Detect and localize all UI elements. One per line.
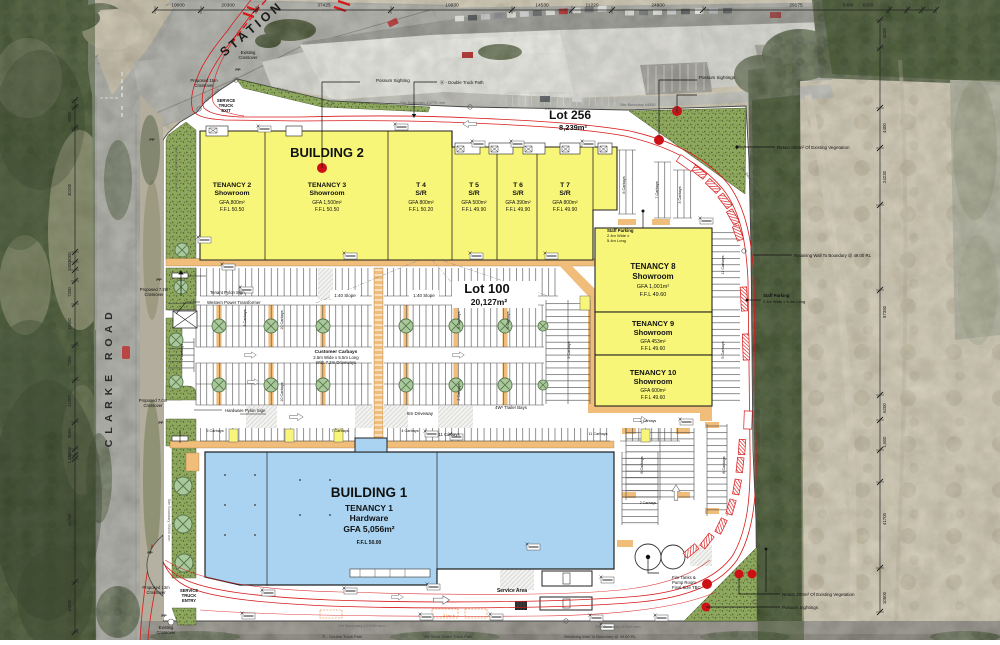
- svg-text:Ⓐ - Double Truck Path: Ⓐ - Double Truck Path: [322, 633, 362, 639]
- svg-text:11 Carbays: 11 Carbays: [588, 432, 607, 436]
- svg-text:5 Carbays: 5 Carbays: [721, 341, 725, 358]
- svg-text:Ⓐ - Double Truck Path: Ⓐ - Double Truck Path: [440, 79, 484, 86]
- svg-text:10 Carbays: 10 Carbays: [280, 310, 284, 330]
- svg-text:2 Carbays: 2 Carbays: [457, 383, 461, 400]
- svg-text:10 Carbays: 10 Carbays: [280, 382, 284, 402]
- svg-text:ENTRY: ENTRY: [182, 598, 196, 603]
- svg-text:Retain 200m² Of Existing Veget: Retain 200m² Of Existing Vegetation: [782, 592, 855, 597]
- svg-text:Showroom: Showroom: [634, 328, 673, 337]
- svg-text:10500: 10500: [67, 599, 72, 612]
- svg-text:3300: 3300: [67, 261, 72, 271]
- svg-text:97350: 97350: [882, 305, 887, 318]
- svg-text:T 4: T 4: [416, 182, 426, 189]
- svg-text:6 Carbays: 6 Carbays: [622, 176, 626, 193]
- svg-text:2.4m Wide x 5.4m Long: 2.4m Wide x 5.4m Long: [763, 299, 805, 304]
- svg-text:Staff Parking: Staff Parking: [763, 293, 790, 298]
- svg-text:C L A R K E R O A D: C L A R K E R O A D: [103, 311, 115, 448]
- svg-text:Possum Sightings: Possum Sightings: [699, 75, 736, 80]
- svg-text:4W Semi Trailer Truck Path: 4W Semi Trailer Truck Path: [424, 634, 473, 639]
- svg-text:24230: 24230: [882, 170, 887, 183]
- svg-text:F.F.L 50.00: F.F.L 50.00: [357, 540, 382, 546]
- svg-text:S/R: S/R: [415, 190, 426, 197]
- svg-text:Crossover: Crossover: [146, 590, 166, 595]
- svg-text:Western Power Transformer: Western Power Transformer: [207, 300, 261, 305]
- svg-text:EXIT: EXIT: [221, 108, 231, 113]
- svg-text:PP: PP: [158, 420, 164, 425]
- svg-text:41700: 41700: [882, 512, 887, 525]
- svg-text:Tenant Pylon Sign: Tenant Pylon Sign: [210, 290, 245, 295]
- svg-text:TENANCY 9: TENANCY 9: [632, 319, 674, 328]
- svg-text:TENANCY 8: TENANCY 8: [630, 262, 676, 271]
- svg-text:6059: 6059: [882, 28, 887, 38]
- svg-text:1:40 Slope: 1:40 Slope: [334, 293, 356, 298]
- svg-text:11220: 11220: [586, 3, 599, 9]
- svg-text:6000: 6000: [67, 112, 72, 122]
- svg-text:Hardware: Hardware: [350, 513, 389, 523]
- svg-text:GFA 1,500m²: GFA 1,500m²: [312, 200, 342, 206]
- svg-text:1,500: 1,500: [882, 436, 887, 448]
- svg-text:3 Carbays: 3 Carbays: [243, 309, 247, 326]
- svg-text:Service Area: Service Area: [497, 588, 527, 594]
- svg-text:10500: 10500: [882, 591, 887, 604]
- svg-text:14530: 14530: [535, 3, 549, 9]
- svg-text:Lot 100: Lot 100: [464, 281, 510, 296]
- svg-text:S/R: S/R: [559, 190, 570, 197]
- svg-text:2 Carbays: 2 Carbays: [640, 501, 657, 505]
- svg-text:Retain 600m² Of Existing Veget: Retain 600m² Of Existing Vegetation: [777, 145, 850, 150]
- svg-text:3 Carbays: 3 Carbays: [678, 186, 682, 203]
- svg-text:Site Boundary 95640 mm: Site Boundary 95640 mm: [167, 499, 171, 542]
- svg-text:8000: 8000: [67, 428, 72, 438]
- svg-text:6 Carbays: 6 Carbays: [506, 311, 510, 328]
- svg-text:GFA,800m²: GFA,800m²: [219, 200, 245, 206]
- svg-text:5 Carbays: 5 Carbays: [206, 429, 223, 433]
- svg-text:S/R: S/R: [512, 190, 523, 197]
- svg-text:6200: 6200: [882, 403, 887, 413]
- svg-text:Crossover: Crossover: [238, 55, 258, 60]
- svg-text:5400: 5400: [843, 3, 854, 9]
- svg-text:With 7.2m Driveways: With 7.2m Driveways: [316, 360, 356, 365]
- svg-text:GFA 600m²: GFA 600m²: [640, 388, 666, 394]
- svg-text:GFA 1,001m²: GFA 1,001m²: [637, 284, 670, 290]
- svg-text:Showroom: Showroom: [214, 190, 249, 197]
- svg-text:PP: PP: [147, 550, 153, 555]
- svg-text:21190 mm: 21190 mm: [545, 106, 564, 111]
- svg-text:F.F.L 49.60: F.F.L 49.60: [640, 292, 667, 298]
- svg-text:PP: PP: [235, 67, 241, 72]
- svg-text:4400: 4400: [882, 123, 887, 133]
- svg-text:5.4m Long: 5.4m Long: [607, 238, 626, 243]
- svg-text:2 Carbays: 2 Carbays: [640, 419, 657, 423]
- svg-text:20,127m²: 20,127m²: [471, 297, 508, 307]
- svg-text:4W² Trailer Bays: 4W² Trailer Bays: [495, 405, 527, 410]
- svg-text:F.F.L 50.50: F.F.L 50.50: [220, 207, 244, 213]
- svg-text:24900: 24900: [651, 3, 665, 9]
- svg-text:7 Carbays: 7 Carbays: [331, 429, 348, 433]
- svg-text:6200: 6200: [863, 3, 874, 9]
- svg-text:F.F.L 49.60: F.F.L 49.60: [641, 395, 665, 401]
- svg-text:TENANCY 2: TENANCY 2: [213, 182, 252, 189]
- svg-text:F.F.L 49.90: F.F.L 49.90: [506, 207, 530, 213]
- svg-text:1:40 Slope: 1:40 Slope: [413, 293, 435, 298]
- svg-text:GFA 5,056m²: GFA 5,056m²: [343, 524, 394, 534]
- svg-text:Retaining Wall To Boundary @ 4: Retaining Wall To Boundary @ 49.00 RL: [794, 253, 872, 258]
- svg-text:Crossover: Crossover: [143, 403, 163, 408]
- svg-text:F.F.L 49.90: F.F.L 49.90: [462, 207, 486, 213]
- svg-text:GFA 800m²: GFA 800m²: [552, 200, 578, 206]
- svg-text:6 Carbays: 6 Carbays: [457, 311, 461, 328]
- svg-text:4 Carbays: 4 Carbays: [401, 429, 418, 433]
- svg-text:11 Carbays: 11 Carbays: [721, 255, 725, 274]
- svg-text:40100: 40100: [67, 183, 72, 196]
- svg-text:Showroom: Showroom: [309, 190, 344, 197]
- svg-text:Final Size TBC: Final Size TBC: [672, 585, 701, 590]
- svg-text:Showroom: Showroom: [634, 377, 673, 386]
- svg-text:7200: 7200: [67, 287, 72, 297]
- svg-text:F.F.L 49.60: F.F.L 49.60: [641, 346, 665, 352]
- svg-text:Hardware Pylon Sign: Hardware Pylon Sign: [225, 408, 266, 413]
- svg-text:3 tan b: 3 tan b: [443, 613, 456, 618]
- svg-text:Site Boundary 44550: Site Boundary 44550: [620, 103, 655, 107]
- svg-text:37425: 37425: [317, 3, 331, 9]
- svg-text:19930: 19930: [445, 3, 459, 9]
- svg-text:20300: 20300: [221, 3, 235, 9]
- svg-text:GFA 453m²: GFA 453m²: [640, 339, 666, 345]
- svg-text:F.F.L 50.50: F.F.L 50.50: [315, 207, 339, 213]
- svg-text:7200: 7200: [67, 356, 72, 366]
- svg-text:T 5: T 5: [469, 182, 479, 189]
- svg-text:T 6: T 6: [513, 182, 523, 189]
- svg-text:7 carbays: 7 carbays: [180, 344, 184, 361]
- svg-text:Crossover: Crossover: [144, 292, 164, 297]
- svg-text:TENANCY 10: TENANCY 10: [630, 368, 677, 377]
- svg-text:11 Carbays: 11 Carbays: [438, 432, 459, 437]
- svg-text:F.F.L 49.90: F.F.L 49.90: [553, 207, 577, 213]
- svg-text:GFA 390m²: GFA 390m²: [505, 200, 531, 206]
- svg-text:GFA 800m²: GFA 800m²: [408, 200, 434, 206]
- svg-text:Site Boundary 121930 mm: Site Boundary 121930 mm: [337, 623, 385, 628]
- svg-text:Site Boundary 74130 mm: Site Boundary 74130 mm: [174, 147, 178, 190]
- svg-text:Retaining Wall To Boundary @ 4: Retaining Wall To Boundary @ 49.00 RL: [564, 634, 636, 639]
- svg-text:5000: 5000: [67, 252, 72, 262]
- svg-text:S/R: S/R: [468, 190, 479, 197]
- svg-text:TENANCY 3: TENANCY 3: [308, 182, 347, 189]
- svg-text:41700: 41700: [67, 513, 72, 526]
- svg-text:8 Carbays: 8 Carbays: [722, 456, 726, 473]
- svg-text:Showroom: Showroom: [632, 272, 673, 281]
- svg-text:PP: PP: [161, 613, 167, 618]
- svg-text:F.F.L 50.20: F.F.L 50.20: [409, 207, 433, 213]
- svg-text:1,800: 1,800: [67, 452, 72, 464]
- svg-text:7 Carbays: 7 Carbays: [655, 181, 659, 198]
- svg-text:T 7: T 7: [560, 182, 570, 189]
- svg-text:PP: PP: [149, 137, 155, 142]
- svg-text:8m Driveway: 8m Driveway: [407, 411, 434, 416]
- svg-text:6 Carbays: 6 Carbays: [640, 456, 644, 473]
- svg-text:Site Boundary 57890 mm: Site Boundary 57890 mm: [595, 624, 641, 629]
- svg-text:11000: 11000: [67, 318, 72, 330]
- svg-text:Crossover: Crossover: [156, 630, 176, 635]
- svg-text:29175: 29175: [789, 3, 803, 9]
- svg-text:TENANCY 1: TENANCY 1: [345, 503, 393, 513]
- svg-text:Possum Sightings: Possum Sightings: [782, 605, 819, 610]
- svg-text:GFA 500m²: GFA 500m²: [461, 200, 487, 206]
- svg-text:Possum Sighting: Possum Sighting: [376, 78, 410, 83]
- svg-text:9 Carbays: 9 Carbays: [567, 341, 571, 358]
- svg-text:10000: 10000: [171, 3, 185, 9]
- svg-text:Crossover: Crossover: [194, 83, 214, 88]
- svg-text:PP: PP: [156, 277, 162, 282]
- svg-text:BUILDING 2: BUILDING 2: [290, 145, 364, 160]
- svg-text:Site Boundary 43770 mm: Site Boundary 43770 mm: [400, 100, 446, 105]
- svg-text:11000: 11000: [67, 395, 72, 407]
- svg-text:BUILDING 1: BUILDING 1: [331, 485, 408, 500]
- svg-text:8,239m²: 8,239m²: [559, 123, 587, 132]
- svg-text:Site Boundary 117440 mm: Site Boundary 117440 mm: [759, 408, 763, 453]
